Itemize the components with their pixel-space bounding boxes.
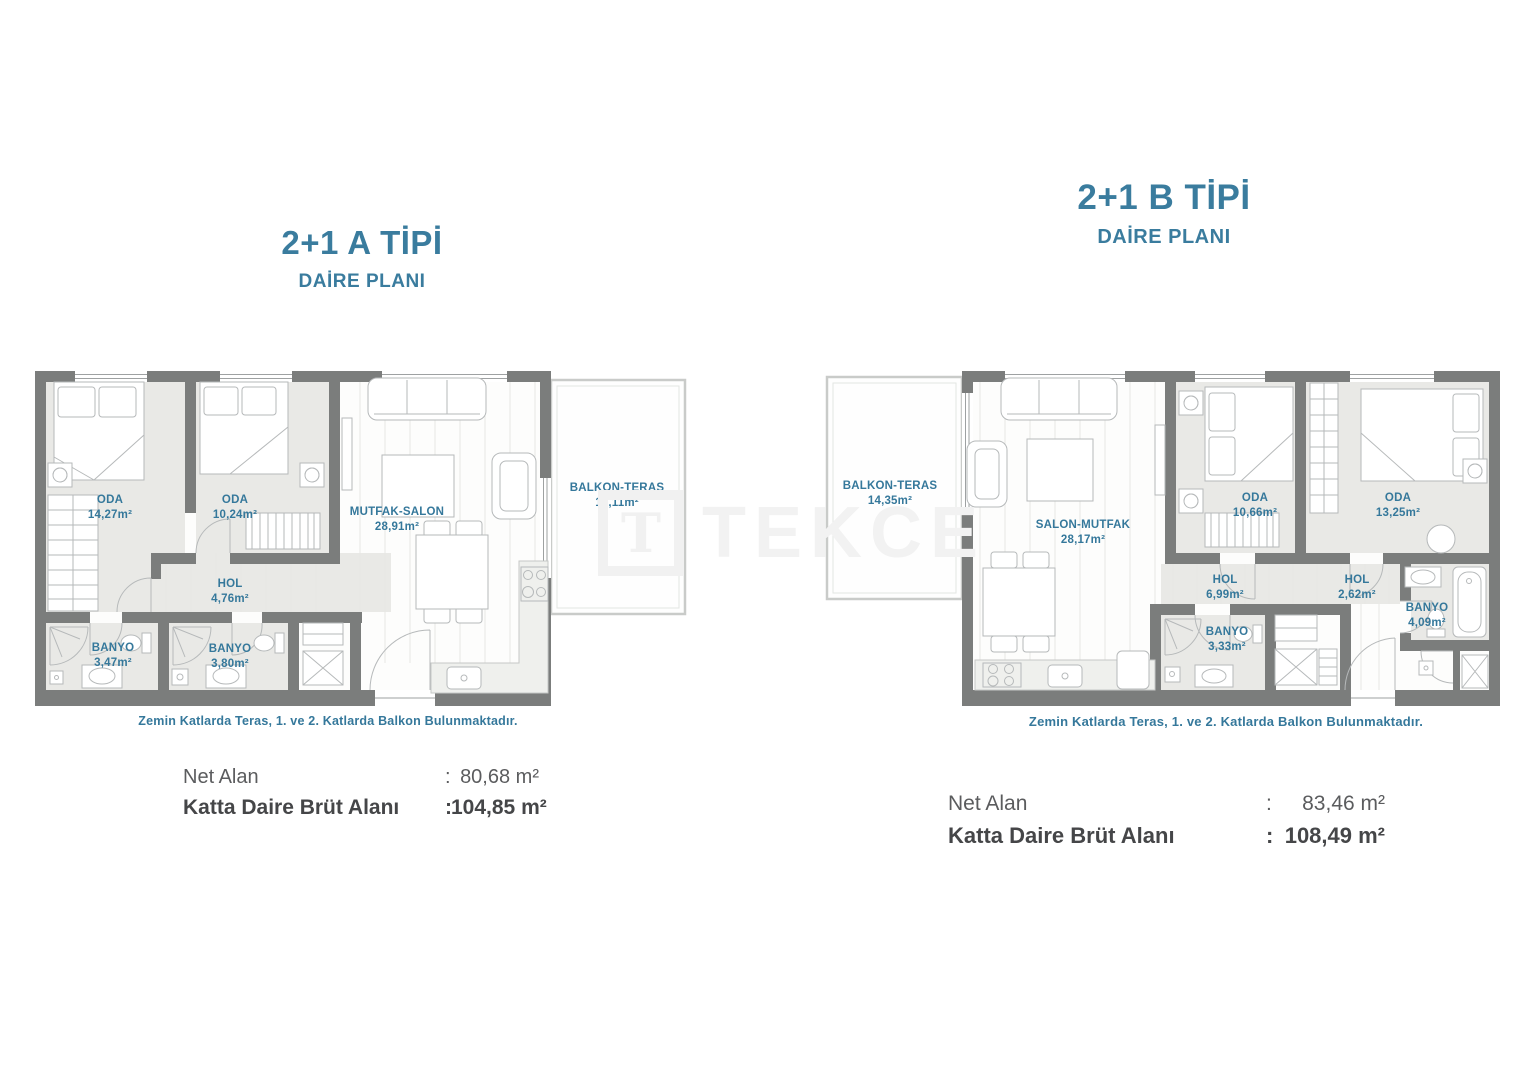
gross-area-value: 108,49 m² [1281, 823, 1385, 849]
room-label-hol-2: HOL2,62m² [1327, 573, 1387, 603]
room-label-balkon-teras: BALKON-TERAS16,11m² [557, 481, 677, 511]
room-label-banyo-2: BANYO3,80m² [195, 642, 265, 672]
room-label-salon-mutfak: SALON-MUTFAK28,17m² [1023, 518, 1143, 548]
plan-b-drawing: BALKON-TERAS14,35m² SALON-MUTFAK28,17m² … [805, 363, 1505, 713]
room-label-hol: HOL4,76m² [200, 577, 260, 607]
plan-b-note: Zemin Katlarda Teras, 1. ve 2. Katlarda … [1016, 714, 1436, 729]
room-label-oda-2: ODA10,24m² [185, 493, 285, 523]
room-label-banyo-1: BANYO3,47m² [78, 641, 148, 671]
vent-fan-icon [1179, 489, 1203, 513]
vent-fan-icon [48, 463, 72, 487]
room-label-oda-1: ODA14,27m² [60, 493, 160, 523]
net-area-label: Net Alan [183, 766, 259, 789]
vent-fan-icon [300, 463, 324, 487]
plan-b-floorplan [805, 363, 1505, 713]
coffee-table-icon [1027, 439, 1093, 501]
net-area-separator: : [1266, 792, 1272, 816]
armchair-icon [492, 453, 536, 519]
sofa-icon [368, 378, 486, 420]
armchair-icon [967, 441, 1007, 507]
shaft-icon [303, 623, 343, 685]
plan-b-title-block: 2+1 B TİPİ DAİRE PLANI [1030, 178, 1298, 249]
room-label-oda-1: ODA10,66m² [1205, 491, 1305, 521]
plan-b-subtitle: DAİRE PLANI [1030, 226, 1298, 249]
gross-area-label: Katta Daire Brüt Alanı [948, 823, 1175, 849]
room-label-banyo-1: BANYO3,33m² [1192, 625, 1262, 655]
net-area-label: Net Alan [948, 792, 1027, 816]
sofa-icon [1001, 378, 1117, 420]
gross-area-value: 104,85 m² [451, 796, 539, 820]
page: { "watermark": { "logo_letter": "T", "te… [0, 0, 1526, 1080]
plan-a-title: 2+1 A TİPİ [230, 224, 494, 262]
vent-fan-icon [1463, 459, 1487, 483]
side-table-icon [1427, 525, 1455, 553]
net-area-value: 83,46 m² [1283, 792, 1385, 816]
dining-table-icon [416, 521, 488, 623]
plan-b-summary: Net Alan : 83,46 m² Katta Daire Brüt Ala… [948, 792, 1398, 854]
plan-a-subtitle: DAİRE PLANI [230, 271, 494, 293]
plan-a-summary: Net Alan : 80,68 m² Katta Daire Brüt Ala… [183, 766, 563, 826]
net-area-separator: : [445, 766, 451, 789]
room-label-oda-2: ODA13,25m² [1348, 491, 1448, 521]
gross-area-label: Katta Daire Brüt Alanı [183, 796, 399, 820]
plan-b-title: 2+1 B TİPİ [1030, 178, 1298, 218]
plan-a-drawing: ODA14,27m² ODA10,24m² MUTFAK-SALON28,91m… [30, 363, 690, 713]
room-label-hol-1: HOL6,99m² [1195, 573, 1255, 603]
plan-a-note: Zemin Katlarda Teras, 1. ve 2. Katlarda … [88, 714, 568, 728]
gross-area-separator: : [1266, 823, 1273, 849]
wardrobe-icon [1310, 383, 1338, 513]
tv-unit-icon [1155, 425, 1165, 495]
sink-icon [1405, 567, 1441, 587]
room-label-banyo-2: BANYO4,09m² [1392, 601, 1462, 631]
tv-unit-icon [342, 418, 352, 490]
bed-icon [1205, 387, 1293, 481]
plan-a-title-block: 2+1 A TİPİ DAİRE PLANI [230, 224, 494, 293]
bed-icon [200, 382, 288, 474]
room-label-mutfak-salon: MUTFAK-SALON28,91m² [337, 505, 457, 535]
net-area-value: 80,68 m² [453, 766, 539, 789]
vent-fan-icon [1179, 391, 1203, 415]
room-label-balkon-teras: BALKON-TERAS14,35m² [830, 479, 950, 509]
